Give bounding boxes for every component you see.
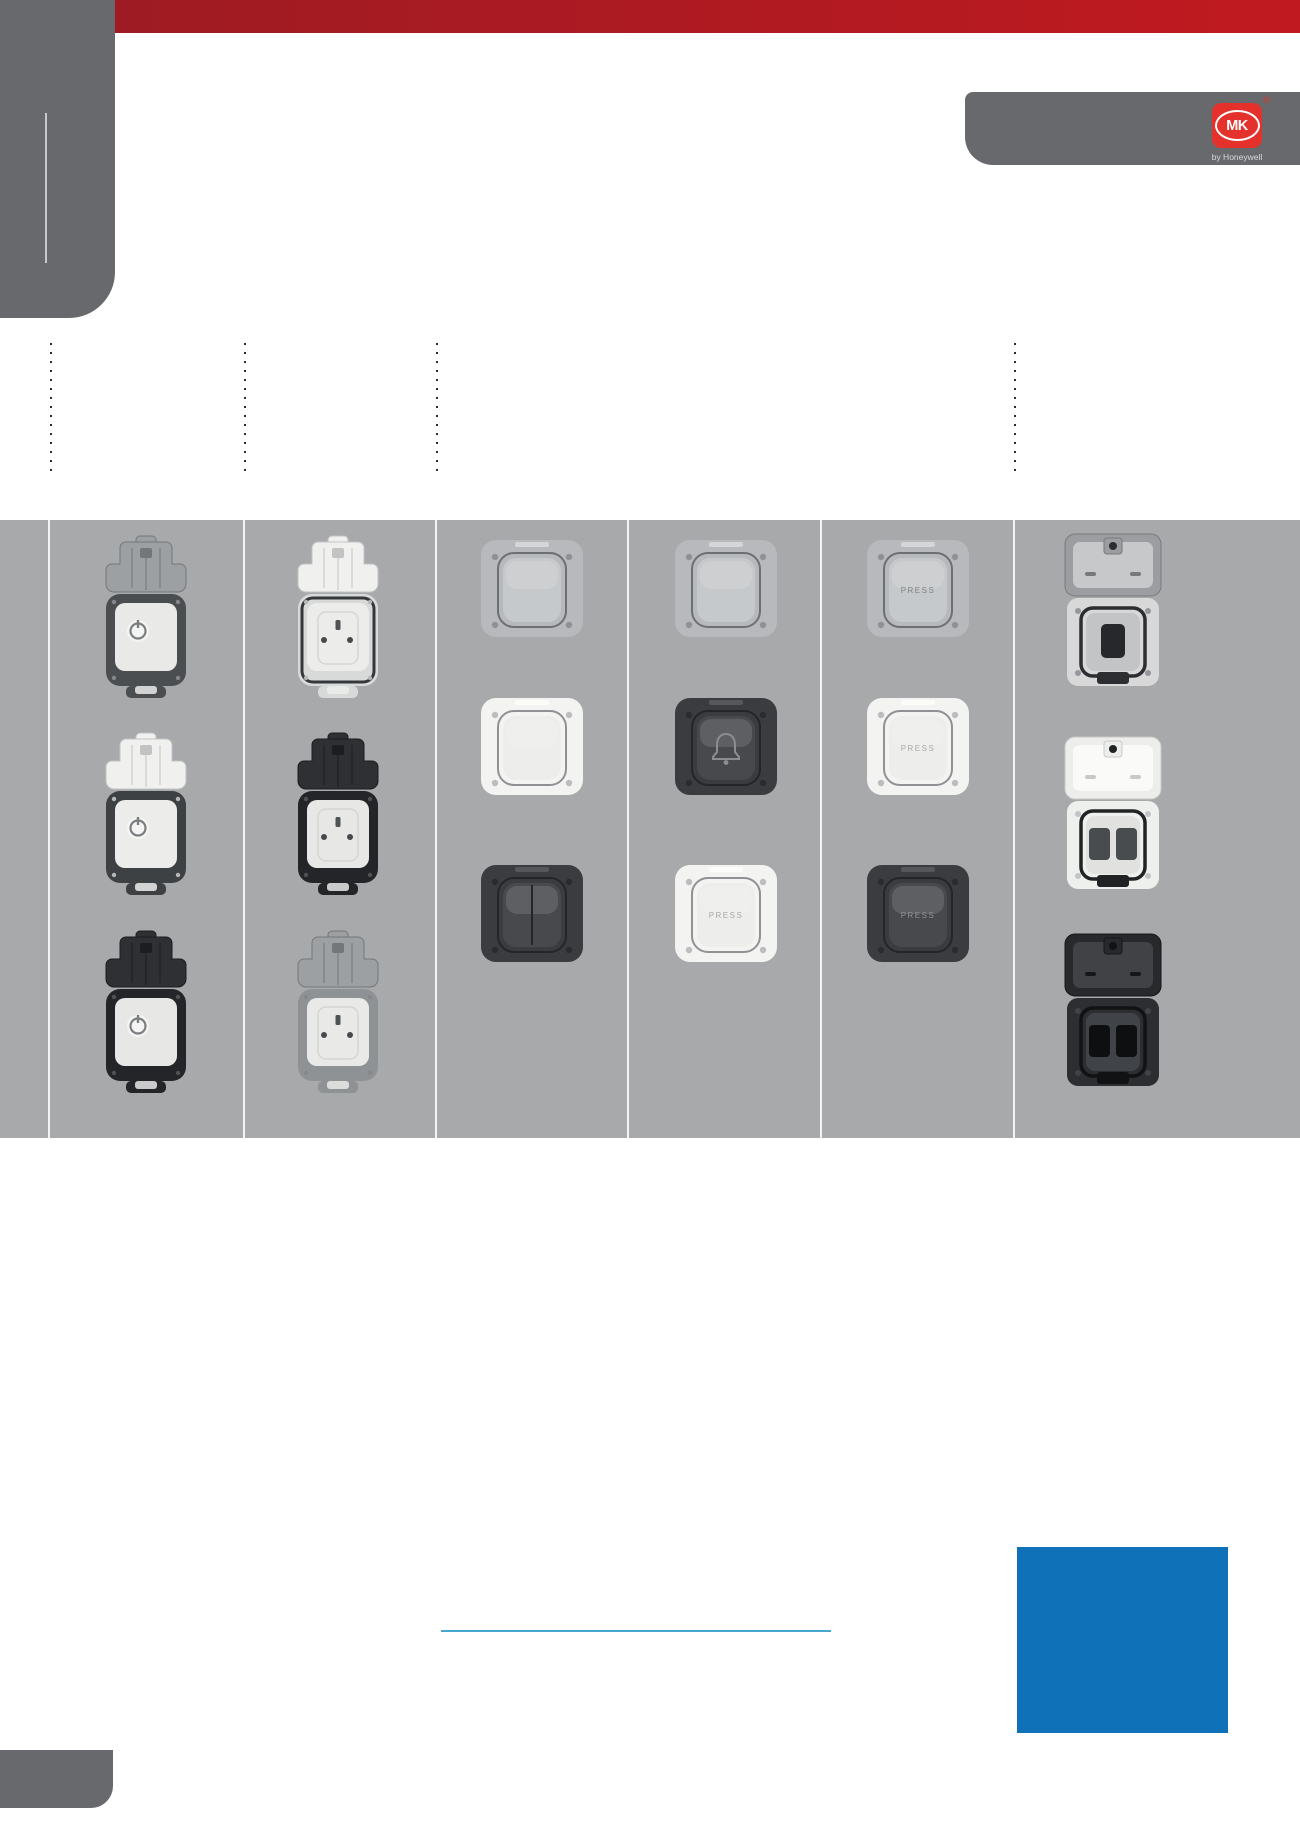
band-separator-6	[1013, 520, 1015, 1138]
logo-box: MK ® by Honeywell	[965, 92, 1300, 165]
product-c3r3-plate-switch-black	[478, 859, 586, 972]
footer-blue-rule	[441, 1630, 831, 1632]
product-c6r1-lidded-socket-single-grey	[1057, 532, 1169, 697]
product-c6r2-lidded-socket-double-white	[1057, 735, 1169, 900]
bottom-corner-tab	[0, 1750, 113, 1808]
mk-logo: MK ®	[1212, 103, 1262, 148]
catalog-page: MK ® by Honeywell PRESSPRESSPRESSPRESS	[0, 0, 1300, 1839]
dotted-separator-1	[50, 343, 52, 471]
power-icon	[127, 1015, 149, 1037]
mk-logo-text: MK	[1226, 118, 1248, 134]
registered-mark: ®	[1263, 95, 1270, 105]
corner-block	[0, 0, 115, 318]
product-c1r1-masterseal-switch-grey	[102, 534, 190, 705]
product-c3r1-plate-switch-grey	[478, 534, 586, 647]
band-separator-5	[820, 520, 822, 1138]
power-icon	[127, 817, 149, 839]
band-separator-4	[627, 520, 629, 1138]
product-c3r2-plate-switch-white	[478, 692, 586, 805]
press-label: PRESS	[901, 911, 936, 920]
dotted-separator-3	[436, 343, 438, 471]
product-c4r1-plate-switch-grey	[672, 534, 780, 647]
product-c4r2-plate-switch-black	[672, 692, 780, 805]
press-label: PRESS	[901, 586, 936, 595]
product-band: PRESSPRESSPRESSPRESS	[0, 520, 1300, 1138]
top-red-bar	[0, 0, 1300, 33]
dotted-separator-2	[244, 343, 246, 471]
product-c5r1-plate-switch-grey: PRESS	[864, 534, 972, 647]
power-icon	[127, 620, 149, 642]
product-c5r3-plate-switch-black: PRESS	[864, 859, 972, 972]
press-label: PRESS	[901, 744, 936, 753]
product-c4r3-plate-switch-white: PRESS	[672, 859, 780, 972]
product-c1r2-masterseal-switch-white	[102, 731, 190, 902]
corner-block-line	[45, 113, 47, 263]
press-label: PRESS	[709, 911, 744, 920]
logo-tagline: by Honeywell	[1192, 152, 1282, 162]
product-c5r2-plate-switch-white: PRESS	[864, 692, 972, 805]
footer-blue-square	[1017, 1547, 1228, 1733]
product-c2r1-masterseal-socket-white	[294, 534, 382, 705]
mk-logo-oval: MK	[1215, 110, 1260, 141]
band-separator-3	[435, 520, 437, 1138]
product-c6r3-lidded-socket-double-black	[1057, 932, 1169, 1097]
dotted-separator-4	[1014, 343, 1016, 471]
product-c2r3-masterseal-socket-grey	[294, 929, 382, 1100]
band-separator-1	[48, 520, 50, 1138]
band-separator-2	[243, 520, 245, 1138]
product-c2r2-masterseal-socket-black	[294, 731, 382, 902]
product-c1r3-masterseal-switch-black	[102, 929, 190, 1100]
